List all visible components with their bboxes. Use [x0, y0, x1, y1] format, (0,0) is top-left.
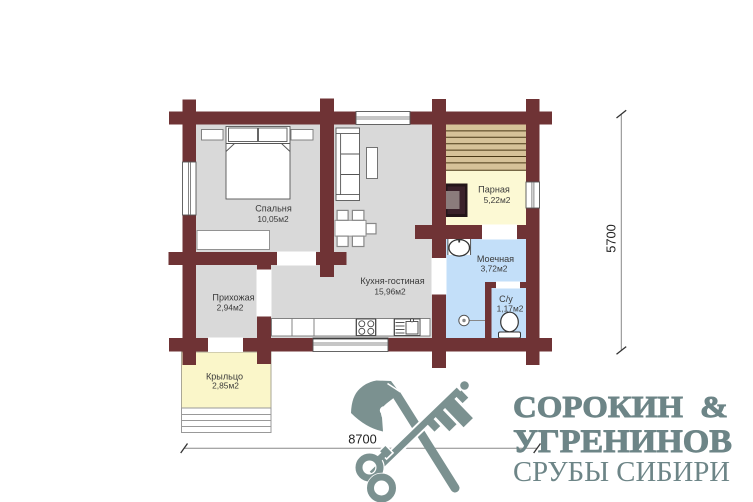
svg-text:Моечная: Моечная: [477, 254, 514, 264]
svg-text:Спальня: Спальня: [255, 204, 292, 214]
svg-text:Парная: Парная: [478, 185, 510, 195]
svg-text:Прихожая: Прихожая: [212, 293, 254, 303]
svg-text:5,22м2: 5,22м2: [484, 195, 511, 205]
svg-text:5700: 5700: [604, 224, 619, 252]
svg-text:8700: 8700: [348, 431, 376, 446]
svg-text:2,94м2: 2,94м2: [217, 303, 244, 313]
svg-text:&: &: [700, 389, 728, 424]
svg-text:УГРЕНИНОВ: УГРЕНИНОВ: [513, 424, 732, 460]
svg-text:СРУБЫ СИБИРИ: СРУБЫ СИБИРИ: [513, 457, 730, 488]
svg-text:Кухня-гостиная: Кухня-гостиная: [360, 276, 424, 286]
svg-text:1,17м2: 1,17м2: [497, 304, 524, 314]
svg-text:3,72м2: 3,72м2: [481, 264, 508, 274]
svg-text:10,05м2: 10,05м2: [257, 214, 289, 224]
svg-text:2,85м2: 2,85м2: [212, 381, 239, 391]
svg-text:15,96м2: 15,96м2: [374, 287, 406, 297]
svg-text:С/у: С/у: [499, 294, 513, 304]
svg-text:СОРОКИН: СОРОКИН: [513, 389, 683, 424]
